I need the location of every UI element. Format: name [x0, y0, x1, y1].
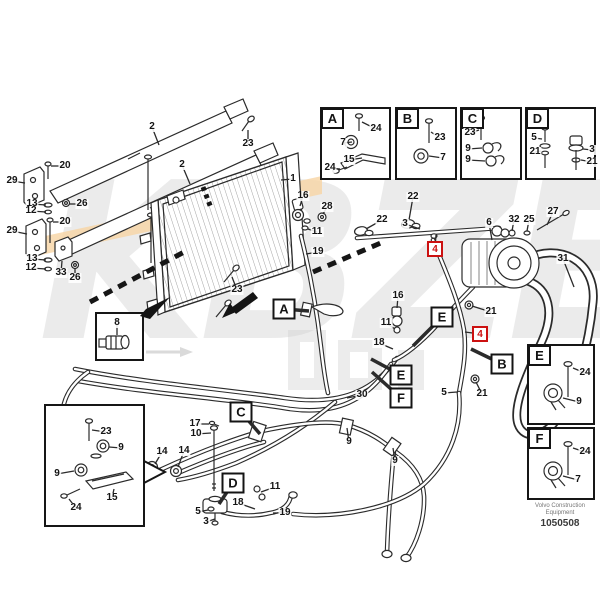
- drawing-number: 1050508: [520, 518, 600, 529]
- parts-diagram-page: KBZE: [0, 0, 600, 600]
- publisher-line2: Equipment: [520, 510, 600, 517]
- title-block: Volvo Construction Equipment 1050508: [520, 503, 600, 529]
- panel-label-f: F: [528, 428, 551, 449]
- publisher-line1: Volvo Construction: [520, 503, 600, 510]
- leader-lines: [0, 0, 600, 600]
- panel-label-c: C: [461, 108, 484, 129]
- panel-label-d: D: [526, 108, 549, 129]
- panel-label-b: B: [396, 108, 419, 129]
- panel-label-e: E: [528, 345, 551, 366]
- panel-label-a: A: [321, 108, 344, 129]
